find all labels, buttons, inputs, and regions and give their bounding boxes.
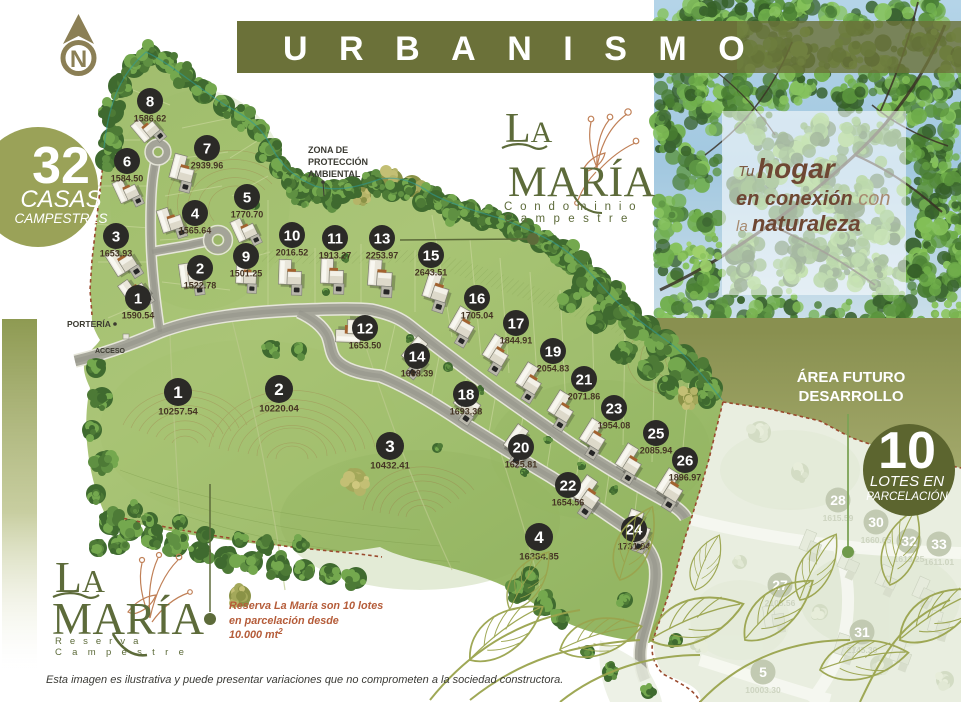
svg-text:la naturaleza: la naturaleza xyxy=(736,211,861,236)
svg-text:MARÍA: MARÍA xyxy=(508,157,656,206)
svg-text:1654.56: 1654.56 xyxy=(552,498,585,508)
svg-text:1731.04: 1731.04 xyxy=(618,542,651,552)
svg-text:hogar: hogar xyxy=(757,153,837,184)
svg-text:1653.93: 1653.93 xyxy=(100,249,133,259)
svg-text:Reserva La María son 10 lotes: Reserva La María son 10 lotes xyxy=(229,600,383,612)
svg-text:URBANISMO: URBANISMO xyxy=(283,30,776,68)
svg-text:Campestre: Campestre xyxy=(504,213,636,225)
svg-text:1565.64: 1565.64 xyxy=(179,226,212,236)
svg-text:2016.52: 2016.52 xyxy=(276,248,309,258)
svg-text:25: 25 xyxy=(648,426,665,443)
svg-text:Condominio: Condominio xyxy=(504,201,643,213)
svg-text:28: 28 xyxy=(830,492,846,508)
svg-text:1522.78: 1522.78 xyxy=(184,281,217,291)
svg-text:8: 8 xyxy=(146,94,154,111)
svg-text:10257.54: 10257.54 xyxy=(158,407,198,418)
svg-text:14: 14 xyxy=(409,349,426,366)
svg-text:2085.94: 2085.94 xyxy=(640,446,673,456)
svg-text:ÁREA FUTURO: ÁREA FUTURO xyxy=(797,369,906,386)
svg-text:1615.59: 1615.59 xyxy=(823,513,854,523)
svg-text:PORTERÍA: PORTERÍA xyxy=(67,319,111,329)
svg-text:2643.51: 2643.51 xyxy=(415,268,448,278)
svg-text:AMBIENTAL: AMBIENTAL xyxy=(308,169,361,179)
svg-text:1: 1 xyxy=(134,291,142,308)
svg-text:Reserva: Reserva xyxy=(55,636,146,647)
svg-text:17: 17 xyxy=(508,316,525,333)
svg-text:1611.01: 1611.01 xyxy=(924,557,955,567)
svg-text:LOTES EN: LOTES EN xyxy=(870,473,944,490)
svg-text:9: 9 xyxy=(242,249,250,266)
svg-text:ACCESO: ACCESO xyxy=(95,348,126,355)
svg-text:1501.25: 1501.25 xyxy=(230,269,263,279)
svg-text:15: 15 xyxy=(423,248,440,265)
svg-text:2: 2 xyxy=(274,380,283,399)
svg-text:1770.70: 1770.70 xyxy=(231,210,264,220)
svg-text:1653.50: 1653.50 xyxy=(349,341,382,351)
svg-text:N: N xyxy=(70,46,87,73)
svg-text:Esta imagen es ilustrativa y p: Esta imagen es ilustrativa y puede prese… xyxy=(46,674,563,686)
svg-text:2145.30: 2145.30 xyxy=(847,645,878,655)
svg-text:22: 22 xyxy=(560,478,577,495)
svg-text:1586.62: 1586.62 xyxy=(134,114,167,124)
svg-text:2939.96: 2939.96 xyxy=(191,161,224,171)
svg-text:7: 7 xyxy=(203,141,211,158)
svg-text:10.000 mt2: 10.000 mt2 xyxy=(229,627,283,641)
svg-text:10432.41: 10432.41 xyxy=(370,461,410,472)
svg-text:CASAS: CASAS xyxy=(20,186,101,213)
svg-text:30: 30 xyxy=(868,514,884,530)
svg-text:32: 32 xyxy=(901,533,917,549)
svg-text:ZONA DE: ZONA DE xyxy=(308,145,348,155)
svg-text:10220.04: 10220.04 xyxy=(259,404,299,415)
svg-text:18: 18 xyxy=(458,387,475,404)
svg-text:4: 4 xyxy=(191,206,200,223)
svg-text:1625.81: 1625.81 xyxy=(505,460,538,470)
svg-text:12: 12 xyxy=(357,321,374,338)
svg-text:2054.83: 2054.83 xyxy=(537,364,570,374)
svg-text:10: 10 xyxy=(284,228,301,245)
svg-text:1584.50: 1584.50 xyxy=(111,174,144,184)
svg-text:PARCELACIÓN: PARCELACIÓN xyxy=(866,490,948,503)
svg-text:33: 33 xyxy=(931,536,947,552)
svg-text:1: 1 xyxy=(173,383,182,402)
svg-text:10003.30: 10003.30 xyxy=(745,685,781,695)
svg-text:1913.27: 1913.27 xyxy=(319,251,352,261)
svg-text:4: 4 xyxy=(534,528,544,547)
svg-text:10: 10 xyxy=(878,422,936,480)
svg-text:16: 16 xyxy=(469,291,486,308)
svg-text:1896.97: 1896.97 xyxy=(669,473,702,483)
svg-text:Tu: Tu xyxy=(738,163,755,180)
svg-text:PROTECCIÓN: PROTECCIÓN xyxy=(308,156,368,167)
svg-text:6: 6 xyxy=(123,154,131,171)
svg-text:2071.86: 2071.86 xyxy=(568,392,601,402)
svg-text:Campestre: Campestre xyxy=(55,647,194,658)
svg-text:11: 11 xyxy=(327,231,343,248)
svg-text:21: 21 xyxy=(576,372,593,389)
svg-text:1693.38: 1693.38 xyxy=(450,407,483,417)
svg-text:DESARROLLO: DESARROLLO xyxy=(799,388,904,405)
svg-text:1705.04: 1705.04 xyxy=(461,311,494,321)
svg-text:5: 5 xyxy=(243,190,251,207)
svg-text:19: 19 xyxy=(545,344,562,361)
svg-text:1668.39: 1668.39 xyxy=(401,369,434,379)
svg-text:3: 3 xyxy=(112,229,120,246)
svg-text:2253.97: 2253.97 xyxy=(366,251,399,261)
svg-text:en parcelación desde: en parcelación desde xyxy=(229,615,339,627)
svg-text:1954.08: 1954.08 xyxy=(598,421,631,431)
svg-text:en conexión con: en conexión con xyxy=(736,188,891,210)
svg-text:31: 31 xyxy=(854,624,870,640)
svg-text:CAMPESTRES: CAMPESTRES xyxy=(14,211,107,226)
svg-text:13: 13 xyxy=(374,231,391,248)
svg-text:2: 2 xyxy=(196,261,204,278)
svg-text:23: 23 xyxy=(606,401,623,418)
svg-text:3: 3 xyxy=(385,437,394,456)
svg-text:1590.54: 1590.54 xyxy=(122,311,155,321)
svg-text:26: 26 xyxy=(677,453,694,470)
svg-text:20: 20 xyxy=(513,440,530,457)
svg-text:1844.91: 1844.91 xyxy=(500,336,533,346)
svg-text:5: 5 xyxy=(759,664,767,680)
